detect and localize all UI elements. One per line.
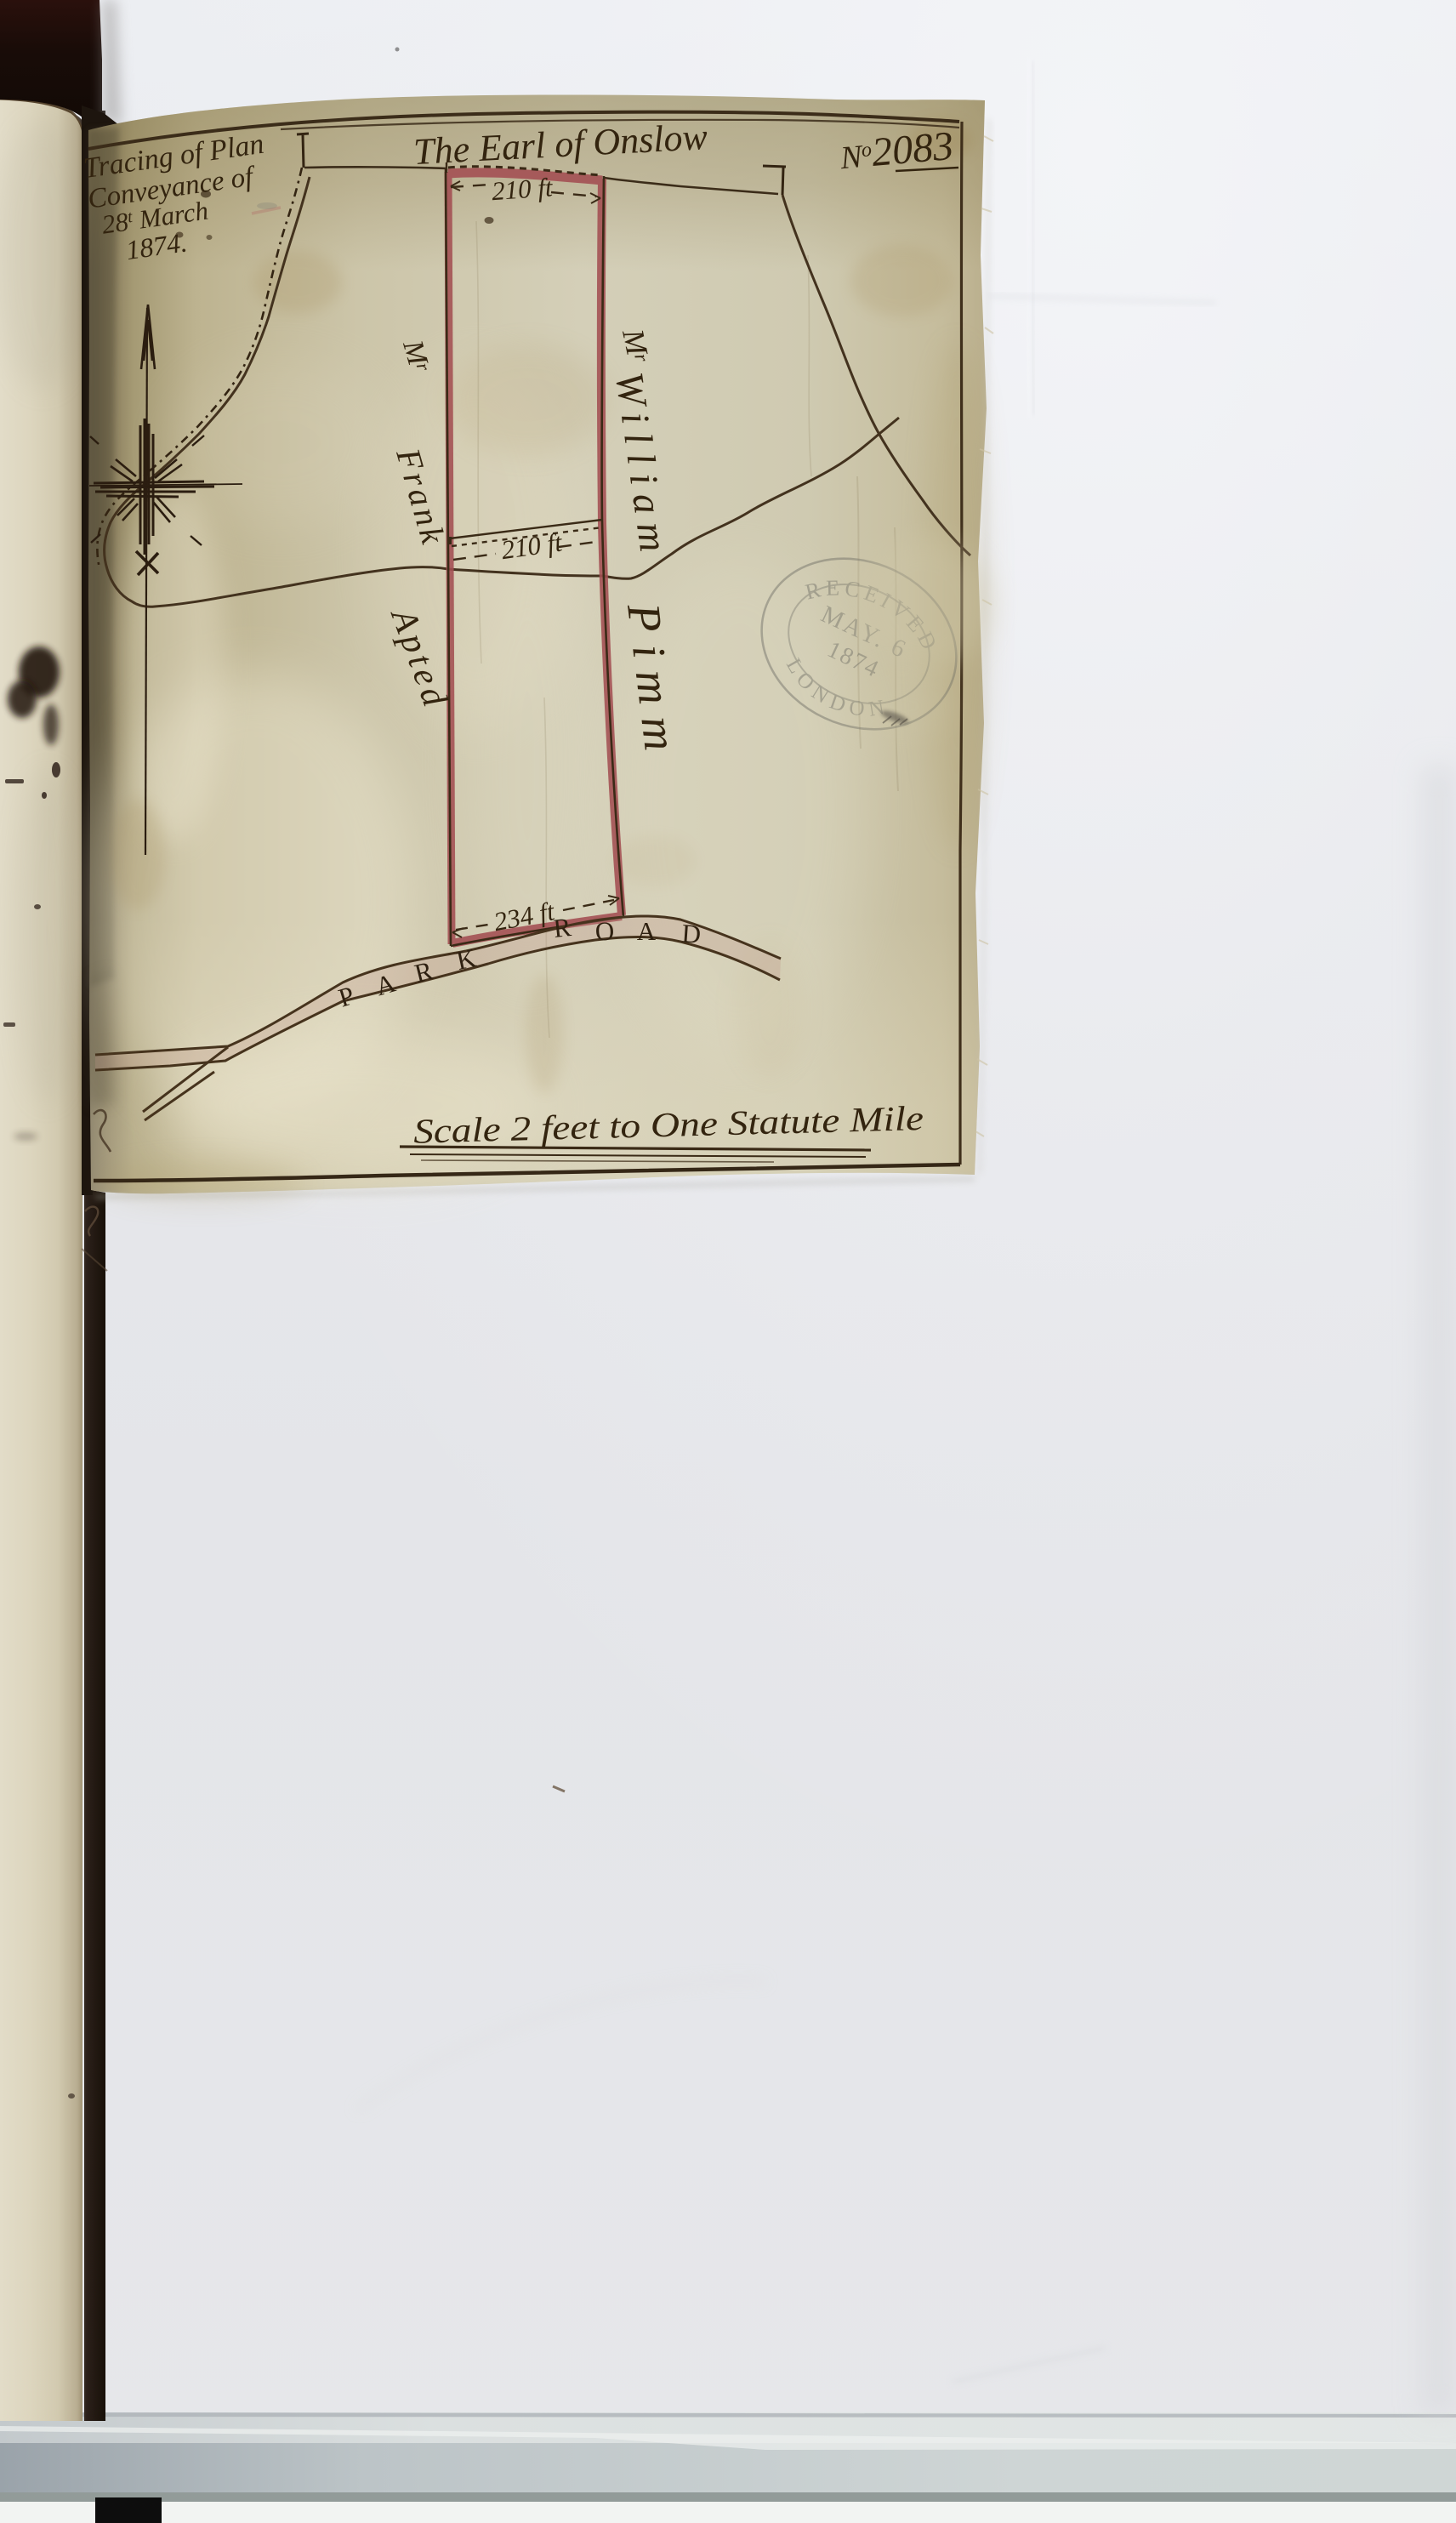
svg-text:A: A xyxy=(637,916,657,946)
svg-text:O: O xyxy=(594,915,615,946)
svg-text:R: R xyxy=(552,912,573,943)
svg-text:D: D xyxy=(681,918,702,948)
svg-text:210 ft: 210 ft xyxy=(491,172,555,206)
